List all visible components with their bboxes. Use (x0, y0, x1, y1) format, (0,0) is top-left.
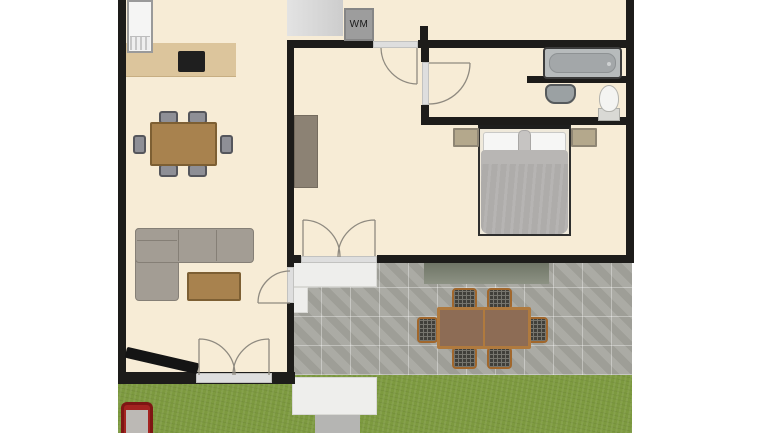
threshold-bathroom-door (422, 62, 429, 105)
nightstand (453, 128, 479, 147)
wall-left-outer (118, 0, 126, 384)
nightstand (571, 128, 597, 147)
threshold-bedroom-french-doors (301, 256, 377, 263)
patio-table-half (440, 310, 483, 346)
patio-step-side (293, 287, 308, 313)
bathtub-drain (607, 62, 611, 66)
wall-top-left-segment (287, 40, 373, 48)
patio-step-landing (293, 262, 377, 287)
bathtub-basin (549, 53, 616, 73)
stairs (287, 0, 343, 36)
wall-right-outer (626, 0, 634, 263)
wall-living-east-upper (287, 40, 294, 267)
stove-cooktop (178, 51, 205, 72)
garden-step (292, 377, 377, 415)
bathtub (543, 47, 622, 79)
patio-table (437, 307, 531, 349)
patio-chair (487, 347, 512, 369)
washing-machine-label: WM (350, 19, 369, 30)
sofa-seam (137, 240, 177, 241)
fridge-door (130, 3, 150, 38)
dining-chair (133, 135, 146, 154)
sofa-seam (216, 230, 217, 261)
garden-path (315, 415, 360, 433)
wall-bedroom-south-right (377, 255, 634, 263)
patio-awning (424, 263, 549, 284)
bed-blanket (481, 150, 568, 234)
threshold-patio-door (287, 267, 294, 303)
fridge-vent (130, 37, 150, 50)
bed (478, 125, 571, 236)
sofa-seam (178, 230, 179, 261)
patio-chair (452, 347, 477, 369)
bathroom-sink (545, 84, 576, 104)
grill (121, 402, 153, 433)
dining-table (150, 122, 217, 166)
threshold-entry-door (373, 41, 418, 48)
toilet-bowl (599, 85, 619, 112)
grill-lid (126, 410, 148, 433)
washing-machine: WM (344, 8, 374, 41)
coffee-table (187, 272, 241, 301)
threshold-living-french-doors (196, 373, 272, 383)
dining-chair (220, 135, 233, 154)
wall-bathroom-west-upper (421, 48, 429, 62)
sofa-body (135, 228, 254, 263)
wardrobe (294, 115, 318, 188)
wall-stub-entry (420, 26, 428, 48)
patio-chair (417, 317, 438, 343)
wall-bedroom-south-left (287, 255, 301, 263)
patio-table-half (485, 310, 528, 346)
fridge (127, 0, 153, 53)
floor-plan: WM (0, 0, 762, 433)
wall-living-east-lower (287, 303, 294, 372)
